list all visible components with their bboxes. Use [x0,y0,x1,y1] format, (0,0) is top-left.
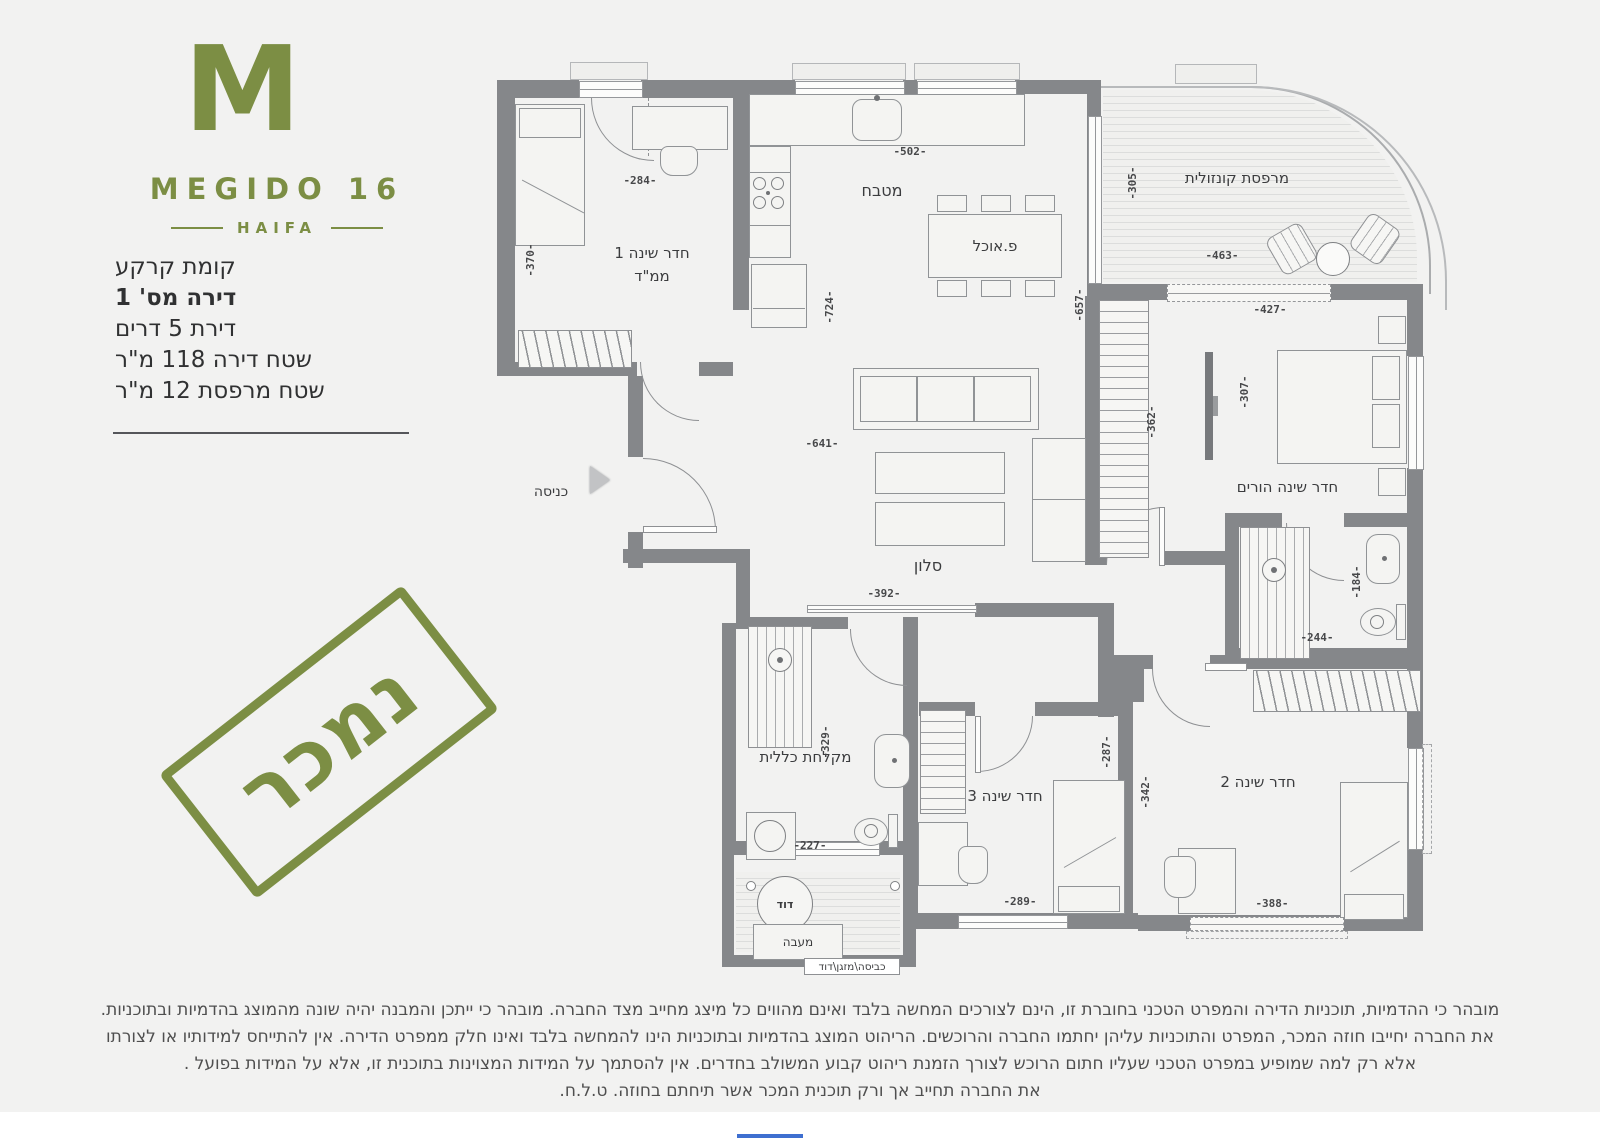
pillow [1372,404,1400,448]
dimension: -370- [524,238,538,282]
wall [497,80,515,376]
dimension: -392- [854,587,914,601]
service-label: כביסה\מזגן\דוד [819,961,886,973]
wall [699,362,733,376]
toilet-tank [1396,604,1406,640]
coffee-table [875,452,1005,494]
faucet [1382,556,1387,561]
dimension: -287- [1100,730,1114,774]
window [1408,356,1424,470]
dimension: -307- [1238,370,1252,414]
door-arc [643,458,716,531]
dimension: -329- [819,720,833,764]
dimension: -388- [1242,897,1302,911]
sofa-seat [974,376,1031,422]
disclaimer-line: את החברה תחייב אך ורק תוכנית המכר אשר תי… [55,1078,1545,1105]
door-arc [640,362,699,421]
wall [1407,848,1423,931]
wall [722,623,736,855]
wall [1015,80,1087,94]
dimension: -427- [1240,303,1300,317]
dimension: -724- [823,285,837,329]
dimension: -463- [1192,249,1252,263]
window-sill [1186,931,1348,939]
condenser-label: מעבה [783,935,813,949]
wall [641,80,751,98]
window [958,915,1068,929]
pillow [519,108,581,138]
dining-chair [981,195,1011,212]
floor-plan: פ.אוכל [0,0,1600,1139]
kitchen-sink [852,99,902,141]
tv [1205,352,1213,460]
water-heater-label: דוד [777,898,794,911]
dining-chair [937,195,967,212]
dimension: -289- [990,895,1050,909]
window-sill [1175,64,1257,84]
wall [628,376,643,457]
disclaimer: מובהר כי ההדמיות, תוכניות הדירה והמפרט ה… [55,997,1545,1105]
service-label-box: כביסה\מזגן\דוד [804,958,900,975]
dimension: -305- [1126,161,1140,205]
sofa-seat [860,376,917,422]
chair [660,146,698,176]
toilet-drain [864,824,878,838]
wall [1035,702,1118,716]
wall [1098,603,1114,717]
fridge-line [753,308,805,309]
wall [1407,527,1423,662]
nightstand [1378,468,1406,496]
bedroom3-label: חדר שינה 3 [945,787,1065,805]
dimension: -184- [1350,560,1364,604]
sofa-seat [917,376,974,422]
dining-label: פ.אוכל [973,237,1018,255]
burner-knob [766,191,770,195]
wall [733,98,749,310]
wall [1133,655,1153,669]
dimension: -641- [792,437,852,451]
dining-chair [1025,195,1055,212]
disclaimer-line: את החברה יחייבו חוזה המכר, המפרט והתוכני… [55,1024,1545,1051]
armchair [1032,438,1086,562]
shower-head-dot [1271,567,1277,573]
page: M MEGIDO 16 HAIFA קומת קרקע דירה מס' 1 ד… [0,0,1600,1139]
pillow [1372,356,1400,400]
burner [771,196,784,209]
tv-mount [1213,396,1218,416]
shower [748,626,812,748]
faucet [892,758,897,763]
pillow [1058,886,1120,912]
living-room-label: סלון [888,556,968,575]
dimension: -502- [880,145,940,159]
window-sill [914,63,1020,80]
wall [903,80,917,94]
burner [753,177,766,190]
wall [1085,296,1099,565]
burner [753,196,766,209]
toilet-tank [888,814,898,848]
kitchen-label: מטבח [842,181,922,200]
shower-head-dot [777,657,783,663]
column [746,881,756,891]
dimension: -284- [610,174,670,188]
entrance-label: כניסה [518,484,584,500]
wall [975,603,1098,617]
window-sill [570,62,648,80]
dining-table: פ.אוכל [928,214,1062,278]
bedroom1-sub-label: ממ"ד [592,267,712,285]
wall [1164,551,1225,565]
balcony-table [1316,242,1350,276]
disclaimer-line: אלא רק למה שמופיע במפרט הטכני שעליו חתום… [55,1051,1545,1078]
dining-chair [1025,280,1055,297]
burner [771,177,784,190]
fridge [751,264,807,328]
bedroom1-label: חדר שינה 1 [592,244,712,262]
chair [958,846,988,884]
dimension: -362- [1145,400,1159,444]
condenser: מעבה [753,924,843,960]
dimension: -227- [780,839,840,853]
closet [1099,300,1149,558]
bathroom-label: מקלחת כללית [733,748,878,766]
wall [736,563,750,623]
chair [1164,856,1196,898]
entrance-arrow-icon [590,466,610,494]
dimension: -244- [1287,631,1347,645]
wall [497,80,579,98]
toilet-drain [1370,615,1384,629]
door-arc [977,716,1033,772]
column [890,881,900,891]
master-bedroom-label: חדר שינה הורים [1205,478,1370,496]
desk [632,106,728,150]
dining-chair [981,280,1011,297]
balcony-label: מרפסת קונזולית [1157,169,1317,187]
balcony-parapet-outer [1101,86,1447,310]
window-sill [792,63,906,80]
door-leaf [1159,507,1165,566]
wall [722,855,734,967]
door-leaf [643,526,717,533]
door-arc [1152,669,1210,727]
wall [749,80,795,94]
dimension: -657- [1073,283,1087,327]
dimension: -342- [1139,770,1153,814]
door-leaf [1205,663,1247,671]
door-leaf [975,716,981,773]
wall [1344,513,1421,527]
faucet [874,95,880,101]
window [1190,917,1344,931]
armchair-line [1033,499,1085,500]
closet [1253,670,1421,712]
window [579,81,643,98]
nightstand [1378,316,1406,344]
door-arc [850,629,907,686]
disclaimer-line: מובהר כי ההדמיות, תוכניות הדירה והמפרט ה… [55,997,1545,1024]
wall [628,532,643,568]
bedroom2-label: חדר שינה 2 [1196,773,1320,791]
coffee-table [875,502,1005,546]
wall [903,855,916,967]
wall [1225,513,1239,662]
window-sill [1422,744,1432,854]
pillow [1344,894,1404,920]
closet [518,330,632,368]
balcony-door-window [1088,116,1102,284]
dining-chair [937,280,967,297]
bottom-accent-bar [737,1134,803,1138]
sliding-door [807,605,977,613]
